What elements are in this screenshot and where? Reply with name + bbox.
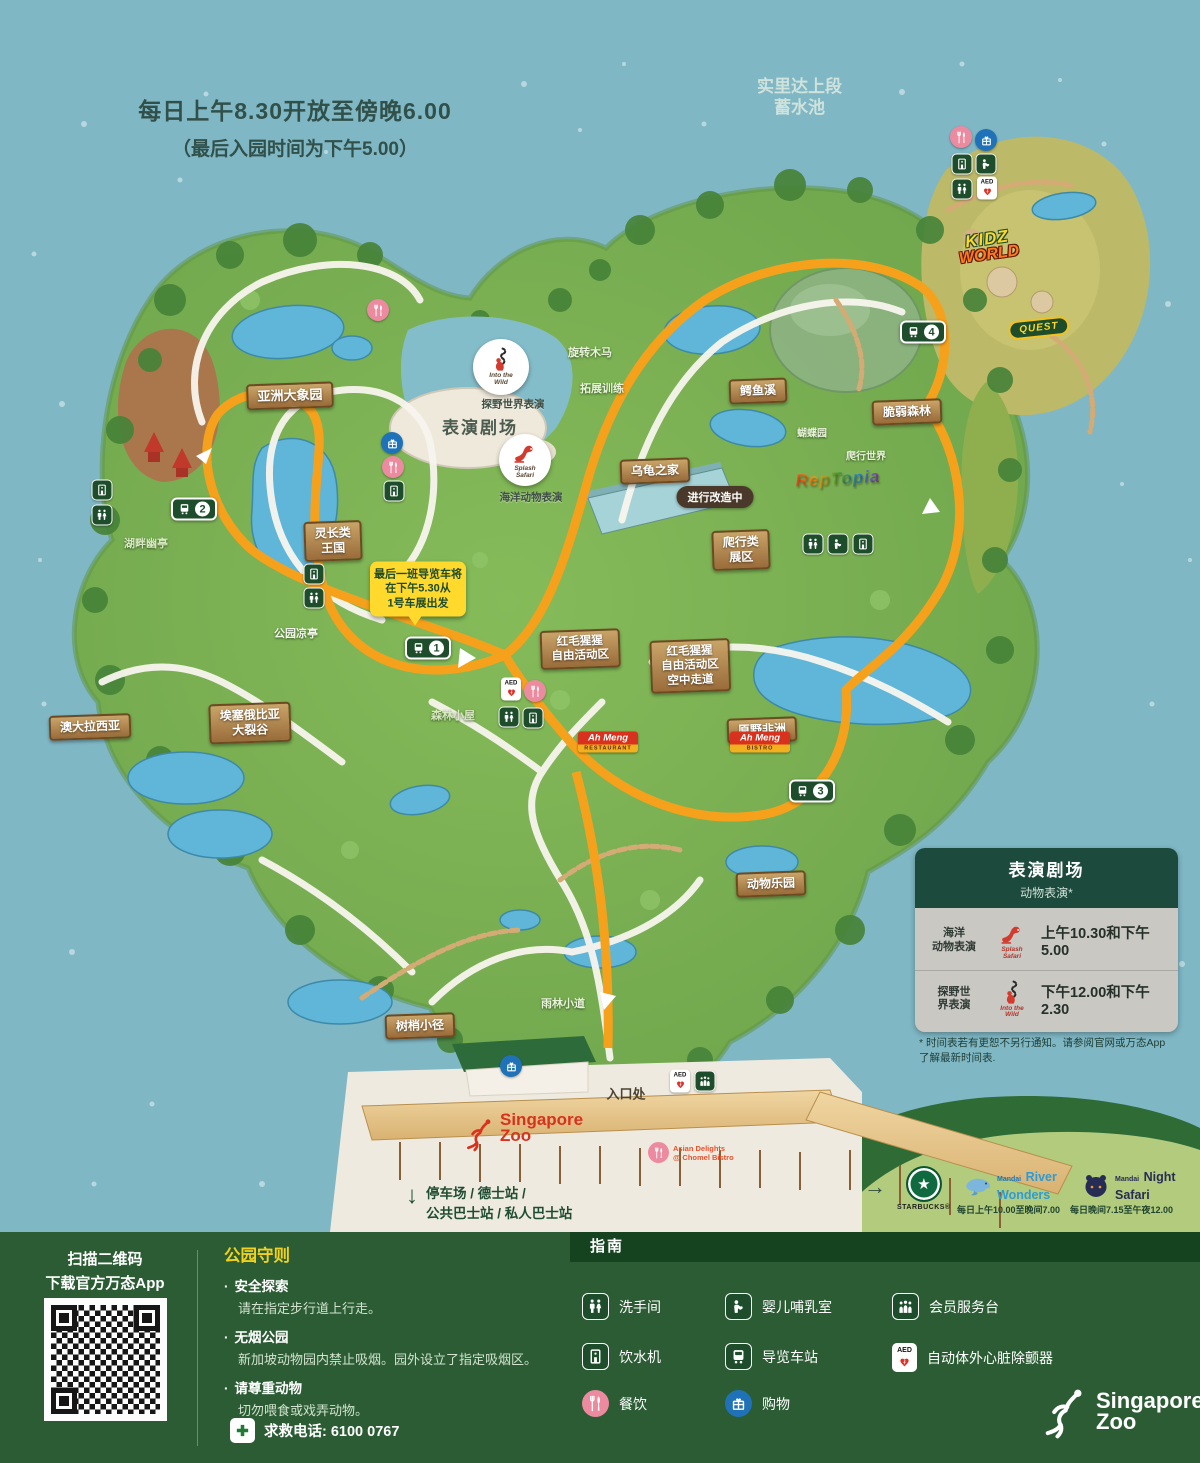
starbucks-icon: ★ (906, 1166, 942, 1202)
shopping-icon (725, 1390, 752, 1417)
rule-item: ·请尊重动物 切勿喂食或戏弄动物。 (224, 1377, 584, 1419)
tram-icon (412, 642, 425, 655)
nursing-room-icon (725, 1293, 752, 1320)
first-aid-cross-icon (230, 1418, 255, 1443)
zoo-map-page: 每日上午8.30开放至傍晚6.00 （最后入园时间为下午5.00） 实里达上段 … (0, 0, 1200, 1463)
lemur-icon (999, 980, 1025, 1006)
river-wonders-hours: 每日上午10.00至晚间7.00 (957, 1203, 1060, 1216)
asian-delights-label: Asian Delights @ Chomel Bistro (648, 1142, 734, 1163)
water-dispenser-icon (523, 708, 544, 729)
label-park-pavilion: 公园凉亭 (274, 625, 318, 641)
into-the-wild-badge-text: Into the Wild (489, 373, 512, 387)
restroom-icon (803, 534, 824, 555)
restroom-icon (582, 1293, 609, 1320)
sign-animal-land: 动物乐园 (736, 870, 807, 897)
water-dispenser-icon (853, 534, 874, 555)
tram-stop-2-badge: 2 (171, 498, 217, 521)
aed-icon: AED (501, 678, 521, 701)
showtime-row: 海洋 动物表演 Splash Safari 上午10.30和下午5.00 (915, 912, 1178, 970)
gibbon-icon (462, 1112, 496, 1156)
showtimes-subtitle: 动物表演* (919, 884, 1174, 901)
app-qr-code (44, 1298, 167, 1421)
water-dispenser-icon (582, 1343, 609, 1370)
membership-desk-icon (892, 1293, 919, 1320)
showtimes-header: 表演剧场 动物表演* (915, 848, 1178, 908)
restroom-icon (92, 505, 113, 526)
starbucks-logo: ★ STARBUCKS® (897, 1166, 951, 1211)
dining-icon (367, 299, 389, 321)
sign-treetop-trail: 树梢小径 (385, 1012, 456, 1039)
label-entrance: 入口处 (606, 1084, 645, 1103)
qr-caption-line2: 下载官方万态App (15, 1272, 195, 1293)
showtimes-panel: 表演剧场 动物表演* 海洋 动物表演 Splash Safari 上午10.30… (915, 848, 1178, 1032)
parking-info: ↓ 停车场 / 德士站 / 公共巴士站 / 私人巴士站 (406, 1184, 572, 1223)
label-into-the-wild-show: 探野世界表演 (482, 397, 545, 412)
label-forest-lodge: 森林小屋 (431, 707, 475, 723)
legend-shopping: 购物 (725, 1390, 790, 1417)
down-arrow-icon: ↓ (406, 1184, 418, 1223)
singapore-zoo-footer-logo: Singapore Zoo (1038, 1384, 1200, 1440)
last-tram-note: 最后一班导览车将 在下午5.30从 1号车展出发 (370, 562, 466, 617)
showtimes-footnote: * 时间表若有更恕不另行通知。请参阅官网或万态App 了解最新时间表. (919, 1036, 1177, 1066)
rule-item: ·安全探索 请在指定步行道上行走。 (224, 1275, 584, 1317)
leopard-icon (1080, 1170, 1112, 1202)
shopping-icon (381, 432, 403, 454)
into-the-wild-badge: Into the Wild (473, 339, 529, 395)
tram-icon (178, 503, 191, 516)
tram-icon (796, 785, 809, 798)
tram-stop-number: 4 (924, 325, 939, 340)
showtimes-body: 海洋 动物表演 Splash Safari 上午10.30和下午5.00 探野世… (915, 908, 1178, 1032)
footer-divider (197, 1250, 198, 1446)
splash-safari-badge-text: Splash Safari (514, 466, 535, 480)
aed-icon: AED (892, 1343, 917, 1372)
tram-stop-number: 1 (429, 641, 444, 656)
label-butterfly-garden: 蝴蝶园 (797, 425, 827, 440)
label-show-stage: 表演剧场 (442, 414, 518, 439)
sign-crocodile-creek: 鳄鱼溪 (729, 377, 788, 404)
park-rules-title: 公园守则 (224, 1242, 584, 1266)
legend-nursing-room: 婴儿哺乳室 (725, 1293, 832, 1320)
sign-fragile-forest: 脆弱森林 (872, 398, 943, 425)
sign-australasia: 澳大拉西亚 (49, 713, 132, 741)
ah-meng-bistro-logo: Ah Meng Bistro (730, 732, 790, 753)
ah-meng-restaurant-logo: Ah Meng Restaurant (578, 732, 638, 753)
restroom-icon (952, 179, 973, 200)
legend-tram-station: 导览车站 (725, 1343, 818, 1370)
emergency-contact: 求救电话: 6100 0767 (230, 1418, 399, 1443)
sign-rift-valley: 埃塞俄比亚 大裂谷 (208, 702, 291, 745)
water-dispenser-icon (384, 481, 405, 502)
opening-hours: 每日上午8.30开放至傍晚6.00 （最后入园时间为下午5.00） (130, 92, 460, 161)
lemur-icon (488, 347, 514, 373)
aed-icon: AED (977, 177, 997, 200)
opening-hours-line1: 每日上午8.30开放至傍晚6.00 (130, 92, 460, 126)
legend-water-dispenser: 饮水机 (582, 1343, 661, 1370)
legend-dining: 餐饮 (582, 1390, 647, 1417)
seal-icon (512, 440, 538, 466)
restroom-icon (304, 588, 325, 609)
seal-icon (999, 921, 1025, 947)
sign-reptile-zone: 爬行类 展区 (711, 529, 770, 571)
tram-icon (907, 326, 920, 339)
tram-stop-4-badge: 4 (900, 321, 946, 344)
right-arrow-icon: → (864, 1174, 886, 1200)
qr-caption-line1: 扫描二维码 (15, 1248, 195, 1269)
sign-primate-kingdom: 灵长类 王国 (303, 520, 362, 562)
showtimes-title: 表演剧场 (919, 856, 1174, 881)
label-splash-safari-show: 海洋动物表演 (500, 490, 563, 505)
guide-title: 指南 (570, 1232, 1200, 1262)
shopping-icon (975, 129, 997, 151)
membership-desk-icon (695, 1071, 716, 1092)
showtime-row: 探野世 界表演 Into the Wild 下午12.00和下午2.30 (915, 970, 1178, 1029)
restroom-icon (499, 707, 520, 728)
nursing-room-icon (976, 154, 997, 175)
manatee-icon (962, 1170, 994, 1202)
dining-icon (524, 680, 546, 702)
tram-stop-1-badge: 1 (405, 637, 451, 660)
opening-hours-line2: （最后入园时间为下午5.00） (130, 134, 460, 161)
dining-icon (648, 1142, 669, 1163)
singapore-zoo-entrance-logo: Singapore Zoo (462, 1112, 583, 1156)
tram-stop-number: 3 (813, 784, 828, 799)
label-rainforest-walk: 雨林小道 (541, 995, 585, 1011)
aed-icon: AED (670, 1070, 690, 1093)
sign-orangutan-free-range: 红毛猩猩 自由活动区 (540, 628, 621, 670)
water-dispenser-icon (952, 154, 973, 175)
shopping-icon (500, 1055, 522, 1077)
sign-asian-elephants: 亚洲大象园 (246, 381, 334, 410)
gibbon-icon (1038, 1384, 1090, 1440)
dining-icon (950, 126, 972, 148)
park-rules: 公园守则 ·安全探索 请在指定步行道上行走。 ·无烟公园 新加坡动物园内禁止吸烟… (224, 1242, 584, 1428)
rule-item: ·无烟公园 新加坡动物园内禁止吸烟。园外设立了指定吸烟区。 (224, 1326, 584, 1368)
footer: 扫描二维码 下载官方万态App 公园守则 ·安全探索 请在指定步行道上行走。 ·… (0, 1232, 1200, 1463)
dining-icon (382, 456, 404, 478)
legend-membership-desk: 会员服务台 (892, 1293, 999, 1320)
legend-restroom: 洗手间 (582, 1293, 661, 1320)
label-reptile-world: 爬行世界 (846, 448, 886, 463)
sign-orangutan-boardwalk: 红毛猩猩 自由活动区 空中走道 (649, 638, 730, 694)
tram-stop-3-badge: 3 (789, 780, 835, 803)
night-safari-logo: Mandai Night Safari (1080, 1168, 1176, 1204)
sign-turtle-house: 乌龟之家 (620, 457, 691, 484)
dining-icon (582, 1390, 609, 1417)
tram-icon (725, 1343, 752, 1370)
tram-stop-number: 2 (195, 502, 210, 517)
legend-aed: AED 自动体外心脏除颤器 (892, 1343, 1053, 1372)
label-ropes-course: 拓展训练 (580, 380, 624, 396)
water-dispenser-icon (304, 564, 325, 585)
night-safari-hours: 每日晚间7.15至午夜12.00 (1070, 1203, 1173, 1216)
river-wonders-logo: Mandai River Wonders (962, 1168, 1057, 1204)
splash-safari-badge: Splash Safari (499, 434, 551, 486)
reservoir-label: 实里达上段 蓄水池 (742, 76, 857, 119)
label-lakeside-pavilion: 湖畔幽亭 (124, 535, 168, 551)
nursing-room-icon (828, 534, 849, 555)
label-carousel: 旋转木马 (568, 344, 612, 360)
water-dispenser-icon (92, 480, 113, 501)
under-renovation-label: 进行改造中 (677, 486, 754, 508)
